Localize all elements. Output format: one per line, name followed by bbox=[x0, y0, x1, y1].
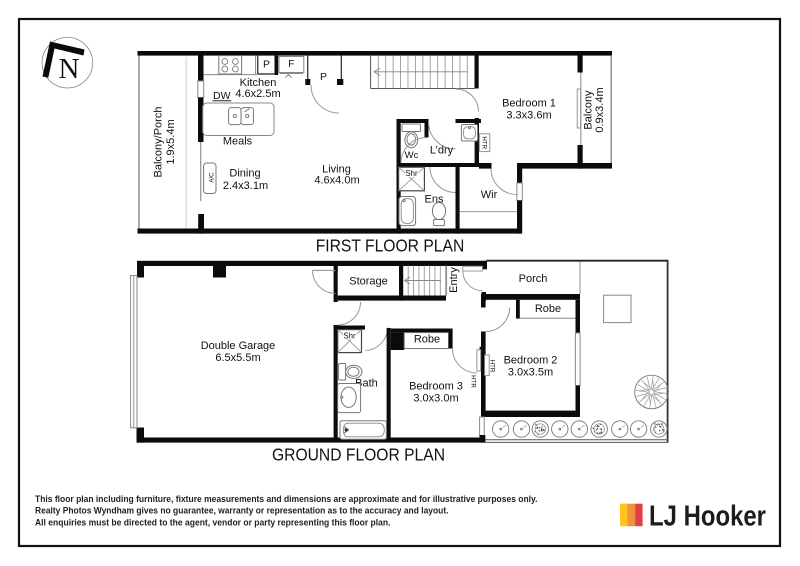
svg-text:Storage: Storage bbox=[349, 276, 388, 288]
svg-text:6.5x5.5m: 6.5x5.5m bbox=[215, 352, 260, 364]
svg-text:FIRST FLOOR PLAN: FIRST FLOOR PLAN bbox=[316, 236, 465, 256]
svg-text:Dining: Dining bbox=[229, 168, 260, 180]
svg-text:GROUND FLOOR PLAN: GROUND FLOOR PLAN bbox=[272, 445, 445, 465]
svg-text:HTR: HTR bbox=[470, 375, 477, 388]
svg-text:Wc: Wc bbox=[405, 150, 419, 161]
svg-text:Entry: Entry bbox=[448, 267, 460, 293]
svg-text:2.4x3.1m: 2.4x3.1m bbox=[223, 180, 268, 192]
svg-text:Balcony: Balcony bbox=[583, 90, 595, 130]
svg-text:4.6x4.0m: 4.6x4.0m bbox=[314, 175, 359, 187]
svg-text:1.9x5.4m: 1.9x5.4m bbox=[165, 119, 177, 164]
svg-text:Balcony/Porch: Balcony/Porch bbox=[153, 107, 165, 178]
svg-text:0.9x3.4m: 0.9x3.4m bbox=[594, 87, 606, 132]
svg-text:A/C: A/C bbox=[209, 172, 216, 183]
svg-text:3.3x3.6m: 3.3x3.6m bbox=[506, 109, 551, 121]
svg-text:HTR: HTR bbox=[489, 360, 496, 373]
svg-text:This floor plan including furn: This floor plan including furniture, fix… bbox=[35, 494, 538, 505]
svg-text:Robe: Robe bbox=[414, 333, 440, 345]
svg-text:HTR: HTR bbox=[481, 136, 488, 149]
svg-text:3.0x3.0m: 3.0x3.0m bbox=[413, 393, 458, 405]
svg-text:3.0x3.5m: 3.0x3.5m bbox=[508, 367, 553, 379]
svg-text:Bedroom 3: Bedroom 3 bbox=[409, 380, 463, 392]
svg-text:DW: DW bbox=[213, 90, 231, 102]
svg-text:L’dry: L’dry bbox=[430, 145, 454, 157]
svg-text:LJ Hooker: LJ Hooker bbox=[649, 501, 766, 533]
svg-text:Realty Photos Wyndham gives no: Realty Photos Wyndham gives no guarantee… bbox=[35, 506, 449, 517]
svg-text:Robe: Robe bbox=[535, 303, 561, 315]
svg-text:N: N bbox=[59, 53, 80, 85]
svg-text:Double Garage: Double Garage bbox=[201, 340, 276, 352]
svg-text:Bedroom 1: Bedroom 1 bbox=[502, 98, 556, 110]
svg-text:F: F bbox=[288, 59, 294, 70]
svg-text:Wir: Wir bbox=[481, 189, 498, 201]
svg-text:Shr: Shr bbox=[405, 169, 418, 178]
svg-text:P: P bbox=[320, 71, 327, 83]
svg-text:Porch: Porch bbox=[519, 273, 548, 285]
svg-text:Ens: Ens bbox=[425, 194, 444, 206]
svg-text:4.6x2.5m: 4.6x2.5m bbox=[235, 88, 280, 100]
svg-text:Shr: Shr bbox=[343, 331, 356, 340]
svg-text:P: P bbox=[263, 59, 270, 71]
svg-text:Meals: Meals bbox=[223, 136, 253, 148]
svg-text:All enquiries must be directed: All enquiries must be directed to the ag… bbox=[35, 517, 391, 528]
svg-text:Bedroom 2: Bedroom 2 bbox=[504, 355, 558, 367]
